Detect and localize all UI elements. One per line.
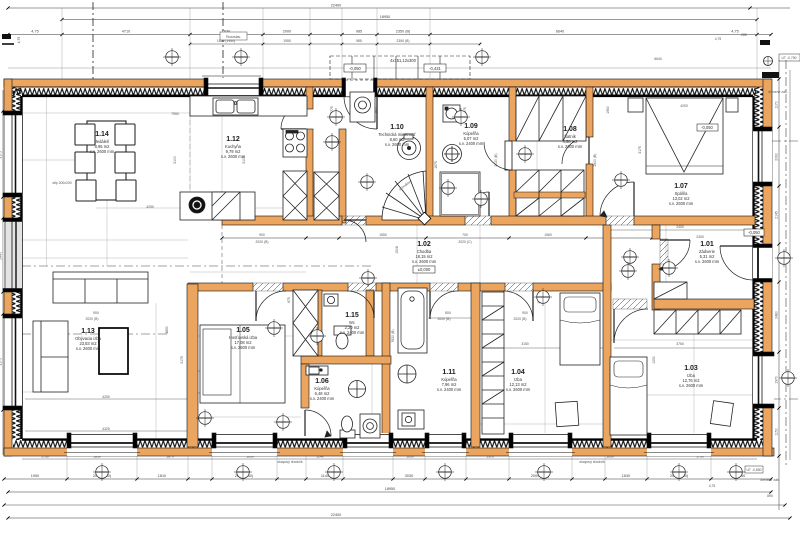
svg-text:1150: 1150: [775, 428, 779, 435]
svg-text:okapový chodník: okapový chodník: [277, 460, 303, 464]
svg-text:1950: 1950: [31, 474, 39, 478]
svg-text:4x151,12x300: 4x151,12x300: [390, 58, 416, 63]
svg-text:1.08: 1.08: [563, 126, 577, 133]
svg-text:890: 890: [767, 494, 773, 498]
svg-text:1955: 1955: [283, 39, 291, 43]
svg-text:s.v. 2600 mm: s.v. 2600 mm: [412, 259, 437, 264]
svg-text:1.14: 1.14: [95, 131, 109, 138]
svg-text:stĺp 200x200: stĺp 200x200: [52, 180, 71, 185]
svg-text:okapový chodník: okapový chodník: [579, 460, 605, 464]
svg-text:22400: 22400: [331, 513, 342, 517]
svg-text:UT -0,850: UT -0,850: [746, 468, 761, 472]
svg-text:1140: 1140: [321, 474, 329, 478]
svg-text:2400: 2400: [696, 235, 704, 239]
svg-text:2350 (B): 2350 (B): [396, 39, 409, 43]
svg-text:3030: 3030: [405, 474, 413, 478]
svg-text:4,75: 4,75: [709, 484, 716, 488]
svg-text:4250: 4250: [102, 395, 110, 399]
svg-text:18950: 18950: [380, 15, 391, 19]
svg-text:s.v. 2600 mm: s.v. 2600 mm: [221, 154, 246, 159]
svg-text:2020 (C): 2020 (C): [458, 240, 471, 244]
svg-text:1.04: 1.04: [511, 369, 525, 376]
svg-text:drevené záb.: drevené záb.: [760, 478, 780, 482]
svg-text:s.v. 2600 mm: s.v. 2600 mm: [90, 149, 115, 154]
svg-text:900: 900: [259, 233, 265, 237]
svg-text:3150: 3150: [521, 342, 529, 346]
svg-text:s.v. 2400 mm: s.v. 2400 mm: [437, 387, 462, 392]
svg-text:2020 (B): 2020 (B): [513, 317, 526, 321]
svg-text:1.01: 1.01: [700, 241, 714, 248]
svg-text:2480: 2480: [775, 311, 779, 319]
svg-text:-0,050: -0,050: [701, 125, 713, 130]
svg-text:2x00 (B): 2x00 (B): [593, 154, 597, 167]
svg-text:6640: 6640: [556, 30, 564, 34]
svg-text:18950: 18950: [385, 487, 396, 491]
svg-text:2445: 2445: [0, 252, 3, 260]
svg-text:2020 (B): 2020 (B): [437, 317, 450, 321]
svg-text:1970: 1970: [775, 376, 779, 384]
svg-text:900: 900: [93, 311, 99, 315]
svg-text:4,75: 4,75: [731, 30, 738, 34]
svg-text:1550: 1550: [379, 233, 387, 237]
svg-text:3175: 3175: [638, 146, 642, 154]
svg-text:6640: 6640: [654, 57, 662, 61]
svg-text:4850: 4850: [165, 326, 169, 334]
svg-text:s.v. 2600 mm: s.v. 2600 mm: [385, 142, 410, 147]
svg-text:985: 985: [356, 39, 362, 43]
svg-text:s.v. 2600 mm: s.v. 2600 mm: [558, 144, 583, 149]
svg-text:s.v. 2600 mm: s.v. 2600 mm: [231, 345, 256, 350]
svg-text:2400: 2400: [676, 225, 684, 229]
svg-text:3750: 3750: [676, 342, 684, 346]
svg-text:s.v. 2400 mm: s.v. 2400 mm: [459, 141, 484, 146]
svg-text:3100: 3100: [173, 156, 177, 164]
svg-text:drevené záb.: drevené záb.: [768, 90, 788, 94]
svg-text:1508: 1508: [395, 246, 399, 254]
svg-text:985: 985: [356, 30, 362, 34]
svg-text:1630: 1630: [622, 474, 630, 478]
svg-text:4325: 4325: [102, 427, 110, 431]
svg-text:1.06: 1.06: [315, 378, 329, 385]
svg-text:700: 700: [462, 233, 468, 237]
svg-text:2060: 2060: [775, 153, 779, 161]
svg-text:7620 (B): 7620 (B): [391, 329, 395, 342]
svg-text:2350 (B): 2350 (B): [396, 30, 411, 34]
svg-text:-0,050: -0,050: [349, 66, 361, 71]
svg-text:1.03: 1.03: [684, 365, 698, 372]
svg-text:1810: 1810: [158, 474, 166, 478]
svg-text:3175: 3175: [0, 151, 3, 159]
svg-text:285: 285: [741, 33, 747, 37]
svg-text:4,75: 4,75: [31, 30, 38, 34]
svg-text:800: 800: [445, 311, 451, 315]
svg-text:1.07: 1.07: [674, 183, 688, 190]
svg-text:3175: 3175: [0, 358, 3, 366]
svg-text:2000: 2000: [283, 30, 291, 34]
svg-text:1170: 1170: [775, 101, 779, 108]
svg-text:4250: 4250: [146, 205, 154, 209]
svg-text:1.02: 1.02: [417, 241, 431, 248]
svg-text:1.12: 1.12: [226, 136, 240, 143]
svg-text:4200: 4200: [680, 104, 688, 108]
svg-text:Rozostav.: Rozostav.: [226, 35, 241, 39]
svg-text:-0,050: -0,050: [748, 230, 760, 235]
svg-text:1.10: 1.10: [390, 124, 404, 131]
svg-text:3175: 3175: [180, 356, 184, 364]
svg-text:22400: 22400: [331, 4, 342, 8]
svg-text:1250: 1250: [652, 356, 656, 364]
svg-text:s.v. 2600 mm: s.v. 2600 mm: [679, 383, 704, 388]
svg-text:4,75: 4,75: [715, 37, 722, 41]
svg-text:s.v. 2400 mm: s.v. 2400 mm: [340, 330, 365, 335]
svg-text:s.v. 2600 mm: s.v. 2600 mm: [506, 387, 531, 392]
svg-text:s.v. 2600 mm: s.v. 2600 mm: [76, 346, 101, 351]
svg-text:1960: 1960: [606, 106, 610, 114]
svg-text:1.09: 1.09: [464, 123, 478, 130]
svg-text:900: 900: [522, 311, 528, 315]
svg-text:2020 (B): 2020 (B): [494, 153, 498, 166]
svg-text:7950: 7950: [171, 112, 179, 116]
svg-text:UT -0,750: UT -0,750: [781, 56, 796, 60]
svg-text:675: 675: [287, 297, 291, 303]
svg-text:-0,431: -0,431: [429, 66, 441, 71]
svg-text:4710: 4710: [122, 30, 130, 34]
svg-text:s.v. 2600 mm: s.v. 2600 mm: [669, 201, 694, 206]
svg-text:2145: 2145: [775, 211, 779, 219]
svg-text:1675: 1675: [434, 161, 438, 169]
svg-text:4,75: 4,75: [17, 37, 21, 44]
svg-text:1.15: 1.15: [345, 312, 359, 319]
svg-text:1.13: 1.13: [81, 328, 95, 335]
svg-text:1560: 1560: [544, 233, 552, 237]
svg-text:±0,000: ±0,000: [418, 267, 431, 272]
svg-text:1.11: 1.11: [442, 369, 455, 376]
svg-text:s.v. 2600 mm: s.v. 2600 mm: [695, 259, 720, 264]
svg-text:s.v. 2400 mm: s.v. 2400 mm: [310, 396, 335, 401]
svg-text:2020 (B): 2020 (B): [85, 317, 98, 321]
svg-text:2020 (B): 2020 (B): [255, 240, 268, 244]
svg-text:1.05: 1.05: [236, 327, 250, 334]
